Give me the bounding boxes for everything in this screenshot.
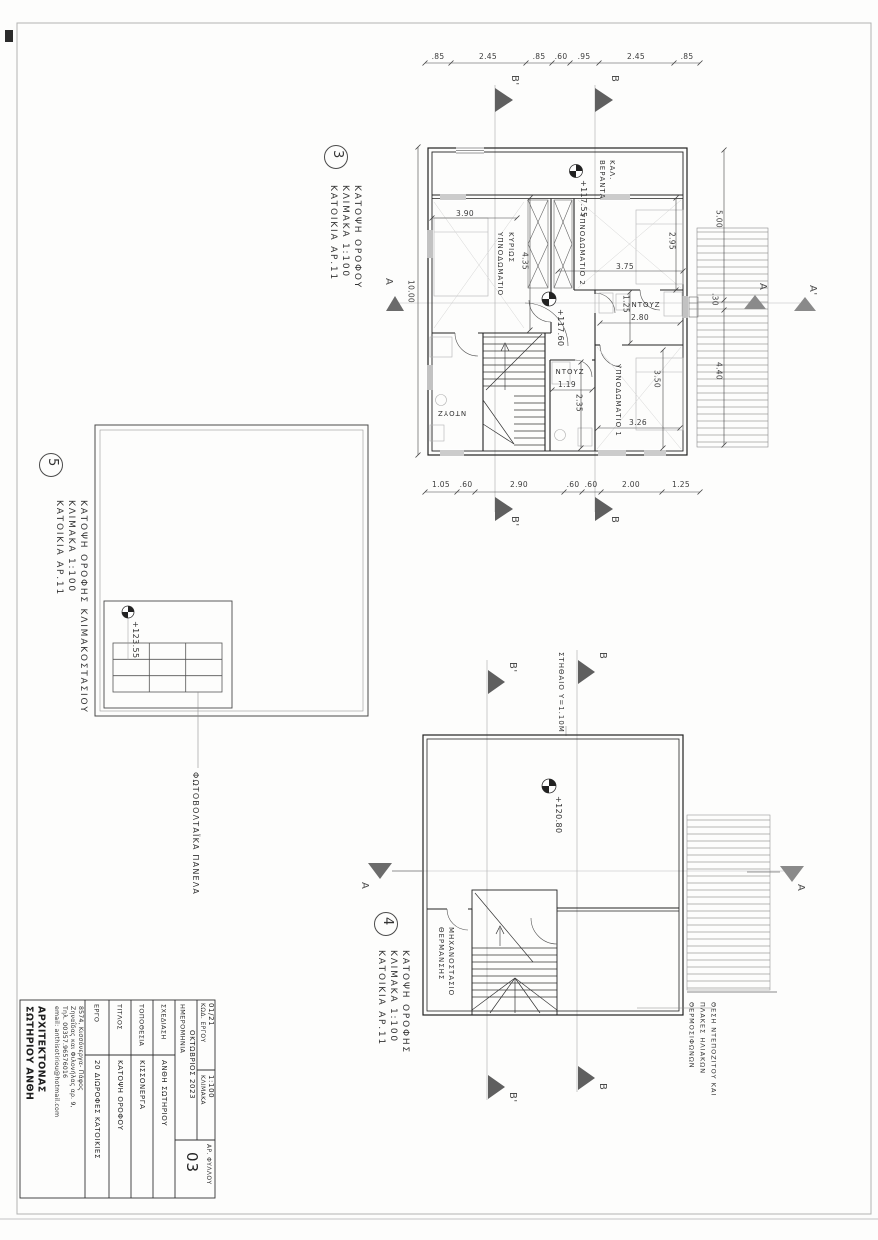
section-marker-label: Β xyxy=(597,1083,607,1090)
plan5-scale: ΚΛΙΜΑΚΑ 1:100 xyxy=(66,500,75,593)
plan3-dim-lines xyxy=(416,61,727,495)
drawing-sheet: 3 ΚΑΤΟΨΗ ΟΡΟΦΟΥ ΚΛΙΜΑΚΑ 1:100 ΚΑΤΟΙΚΙΑ Α… xyxy=(0,0,878,1240)
parapet-note: ΣΤΗΘΑΙΟ Υ=1.10Μ xyxy=(557,652,564,733)
elevation-label: +120.80 xyxy=(554,796,562,834)
architect-phone: Τηλ. 00357.96576016 xyxy=(61,1006,67,1078)
plan5-number: 5 xyxy=(46,458,59,466)
solar-note: ΘΕΡΜΟΣΙΦΩΝΩΝ xyxy=(688,1002,695,1069)
plan3-number: 3 xyxy=(331,150,344,158)
section-marker-label: Β xyxy=(609,516,619,523)
plan5-linework xyxy=(95,425,368,768)
elevation-label: +123.55 xyxy=(131,621,139,659)
dim-label: 2.35 xyxy=(575,394,583,412)
section-marker-label: Β xyxy=(597,652,607,659)
section-marker-label: Α xyxy=(359,882,369,889)
dim-label: 3.26 xyxy=(629,419,647,427)
drawing-linework xyxy=(0,0,878,1240)
dim-label: 2.90 xyxy=(510,481,528,489)
plan4-scale: ΚΛΙΜΑΚΑ 1:100 xyxy=(388,950,397,1043)
dim-label: .85 xyxy=(432,53,445,61)
elevation-label: +117.55 xyxy=(579,180,587,218)
elevation-label: +117.60 xyxy=(556,309,564,347)
plan4-stairs xyxy=(472,893,557,1013)
section-marker-label: Β' xyxy=(509,516,519,527)
dim-label: 1.25 xyxy=(622,295,630,313)
room-label-master: ΚΥΡΙΩΣ xyxy=(507,232,514,263)
pv-panels-note: ΦΩΤΟΒΟΛΤΑΪΚΑ ΠΑΝΕΛΑ xyxy=(191,772,199,895)
dim-label: 5.00 xyxy=(715,210,723,228)
dim-label: .60 xyxy=(567,481,580,489)
plan3-scale: ΚΛΙΜΑΚΑ 1:100 xyxy=(340,185,349,278)
room-label-plant: ΜΗΧΑΝΟΣΤΑΣΙΟ xyxy=(447,927,454,996)
section-marker-label: Β xyxy=(609,75,619,82)
dim-label: 10.00 xyxy=(407,280,415,303)
solar-note: ΠΛΑΚΕΣ ΗΛΙΑΚΩΝ xyxy=(699,1002,706,1074)
room-label-bed2: ΥΠΝΟΔΩΜΑΤΙΟ 2 xyxy=(578,213,585,286)
field-value: ΚΙΣΣΟΝΕΡΓΑ xyxy=(138,1060,145,1110)
dim-label: 1.25 xyxy=(672,481,690,489)
dim-label: .60 xyxy=(460,481,473,489)
dim-label: 2.00 xyxy=(622,481,640,489)
room-label-bed1: ΥΠΝΟΔΩΜΑΤΙΟ 1 xyxy=(614,364,621,437)
room-label-shower: ΝΤΟΥΖ xyxy=(631,302,660,309)
dim-label: .60 xyxy=(555,53,568,61)
room-label-plant: ΘΕΡΜΑΝΣΗΣ xyxy=(437,927,444,980)
section-marker-label: Β' xyxy=(507,1092,517,1103)
section-marker-label: Α xyxy=(795,884,805,891)
field-value: 20 ΔΙΩΡΟΦΕΣ ΚΑΤΟΙΚΙΕΣ xyxy=(93,1060,100,1159)
dim-label: .30 xyxy=(711,293,719,306)
architect-address: 8574, Κισσόνεργα- Πάφος xyxy=(77,1006,83,1091)
room-label-shower: ΝΤΟΥΖ xyxy=(437,409,466,416)
dim-label: .85 xyxy=(681,53,694,61)
scan-artifact xyxy=(5,30,13,42)
dim-label: 2.80 xyxy=(631,314,649,322)
dim-label: 1.19 xyxy=(558,381,576,389)
section-marker-label: Β' xyxy=(507,662,517,673)
architect-title: ΑΡΧΙΤΕΚΤΟΝΑΣ xyxy=(36,1006,46,1093)
solar-note: ΘΕΣΗ ΝΤΕΠΟΖΙΤΟΥ ΚΑΙ xyxy=(710,1002,717,1096)
benchmark-icon xyxy=(122,606,134,618)
field-label: ΤΙΤΛΟΣ xyxy=(116,1004,123,1030)
plan4-linework xyxy=(368,650,804,1100)
architect-name: ΣΩΤΗΡΙΟΥ ΑΝΘΗ xyxy=(24,1006,34,1100)
room-label-shower: ΝΤΟΥΖ xyxy=(555,369,584,376)
pv-panels xyxy=(113,643,222,692)
field-label: ΗΜΕΡΟΜΗΝΙΑ xyxy=(179,1004,186,1053)
room-label-veranda: ΒΕΡΑΝΤΑ xyxy=(598,160,605,200)
section-marker-label: Α xyxy=(383,278,393,285)
dim-label: .60 xyxy=(585,481,598,489)
field-label: ΕΡΓΟ xyxy=(93,1004,100,1022)
dim-label: .95 xyxy=(578,53,591,61)
architect-email: email: anthisotiriou@hotmail.com xyxy=(53,1006,59,1117)
plan4-solar-hatch xyxy=(687,815,770,990)
plan4-title: ΚΑΤΟΨΗ ΟΡΟΦΗΣ xyxy=(400,950,409,1054)
room-label-veranda: ΚΑΛ. xyxy=(608,160,615,180)
plan4-unit: ΚΑΤΟΙΚΙΑ ΑΡ.11 xyxy=(376,950,385,1046)
room-label-master: ΥΠΝΟΔΩΜΑΤΙΟ xyxy=(496,232,503,296)
section-marker-label: Α' xyxy=(807,285,817,296)
plan3-stairs xyxy=(483,334,545,445)
plan5-unit: ΚΑΤΟΙΚΙΑ ΑΡ.11 xyxy=(54,500,63,596)
field-value: ΟΚΤΩΒΡΙΟΣ 2023 xyxy=(188,1030,195,1099)
plan3-title: ΚΑΤΟΨΗ ΟΡΟΦΟΥ xyxy=(352,185,361,289)
dim-label: 3.75 xyxy=(616,263,634,271)
field-label: ΚΩΔ. ΕΡΓΟΥ xyxy=(199,1003,205,1043)
field-value: 1:100 xyxy=(207,1075,214,1098)
section-marker-label: Β' xyxy=(509,75,519,86)
section-marker-label: Α xyxy=(757,283,767,290)
dim-label: 3.90 xyxy=(456,210,474,218)
dim-label: 2.95 xyxy=(668,232,676,250)
dim-label: 4.40 xyxy=(715,362,723,380)
architect-address: Ζηναΐδας και Φιλονήλας αρ. 9, xyxy=(69,1006,75,1108)
benchmark-icon xyxy=(542,779,556,793)
sheet-number-label: ΑΡ. ΦΥΛΛΟΥ xyxy=(205,1144,211,1185)
field-label: ΣΧΕΔΙΑΣΗ xyxy=(160,1004,167,1040)
plan3-pergola-hatch xyxy=(697,228,768,447)
plan3-linework xyxy=(386,61,816,522)
field-value: 01/21 xyxy=(207,1003,214,1026)
dim-label: 4.35 xyxy=(521,252,529,270)
plan4-number: 4 xyxy=(381,917,394,925)
field-value: ΑΝΘΗ ΣΩΤΗΡΙΟΥ xyxy=(160,1060,167,1126)
dim-label: 3.50 xyxy=(653,370,661,388)
plan5-title: ΚΑΤΟΨΗ ΟΡΟΦΗΣ ΚΛΙΜΑΚΟΣΤΑΣΙΟΥ xyxy=(78,500,87,714)
dim-label: 1.05 xyxy=(432,481,450,489)
field-value: ΚΑΤΟΨΗ ΟΡΟΦΟΥ xyxy=(116,1060,123,1131)
field-label: ΚΛΙΜΑΚΑ xyxy=(199,1075,205,1105)
sheet-number-value: 03 xyxy=(184,1152,199,1173)
field-label: ΤΟΠΟΘΕΣΙΑ xyxy=(138,1004,145,1046)
dim-label: .85 xyxy=(533,53,546,61)
plan3-unit: ΚΑΤΟΙΚΙΑ ΑΡ.11 xyxy=(328,185,337,281)
dim-label: 2.45 xyxy=(479,53,497,61)
dim-label: 2.45 xyxy=(627,53,645,61)
